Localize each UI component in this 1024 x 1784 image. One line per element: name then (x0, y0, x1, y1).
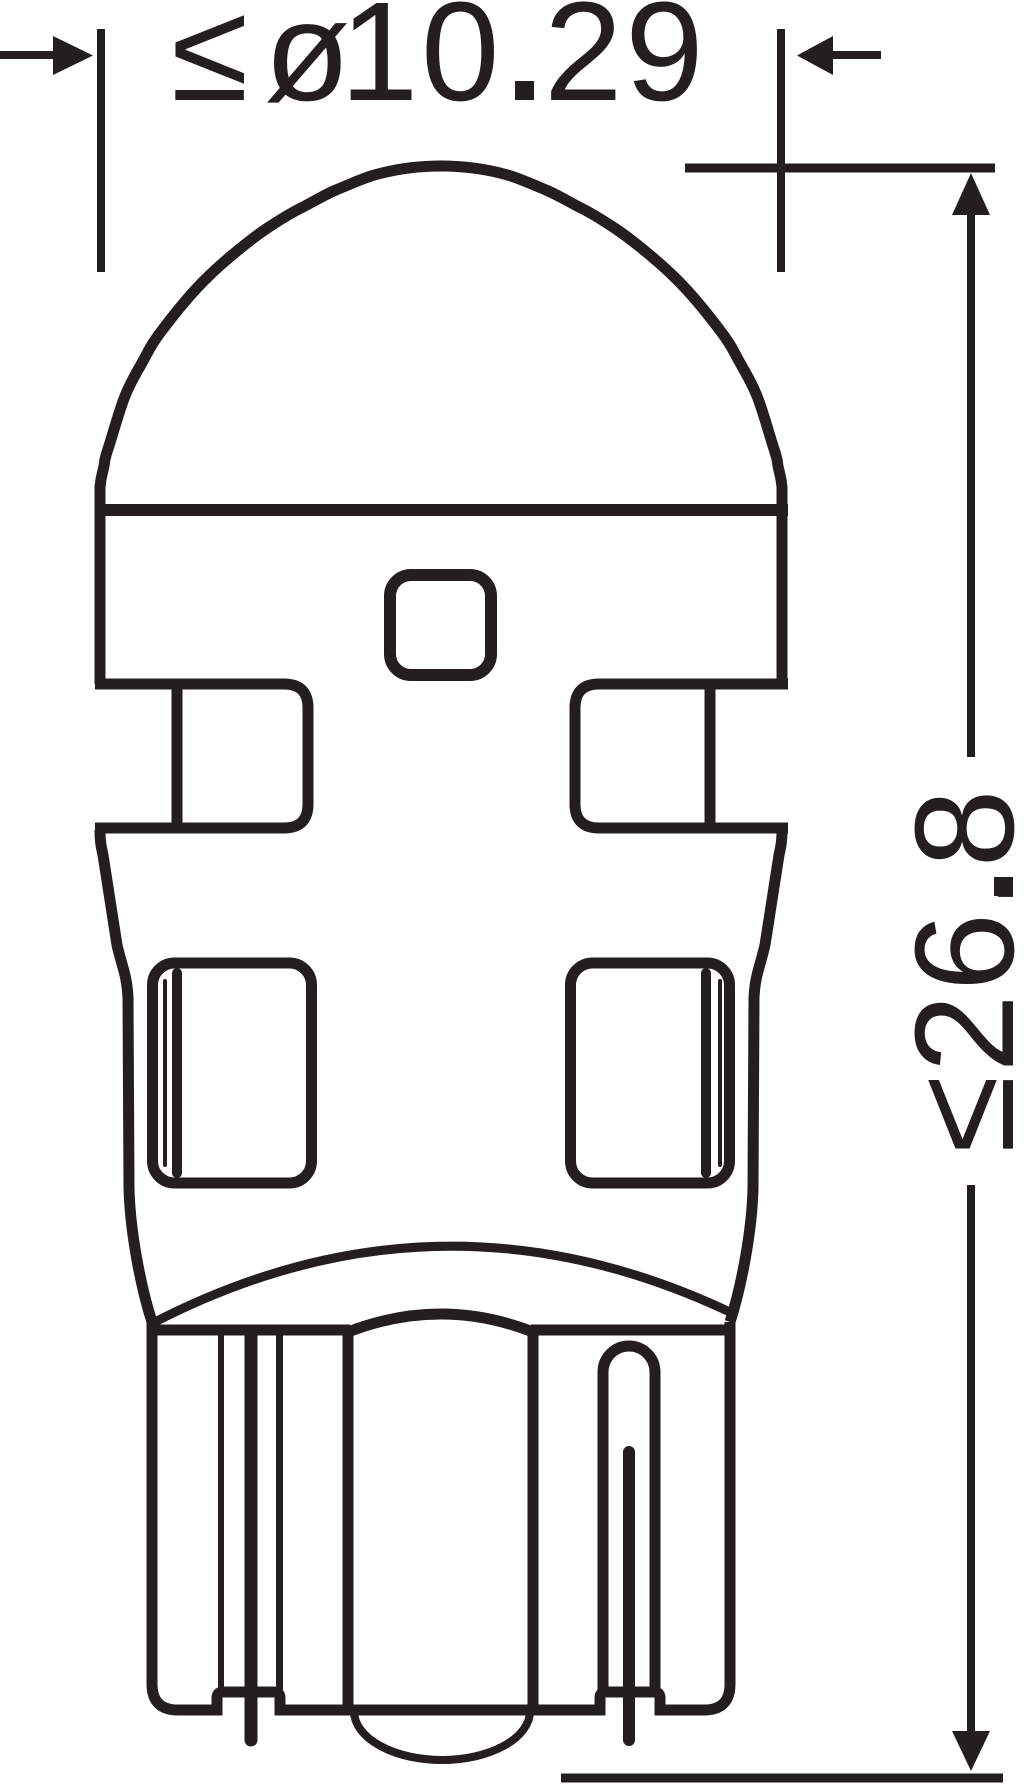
svg-text:≤ø10.29: ≤ø10.29 (171, 0, 706, 130)
svg-text:≤26.8: ≤26.8 (885, 786, 1024, 1153)
